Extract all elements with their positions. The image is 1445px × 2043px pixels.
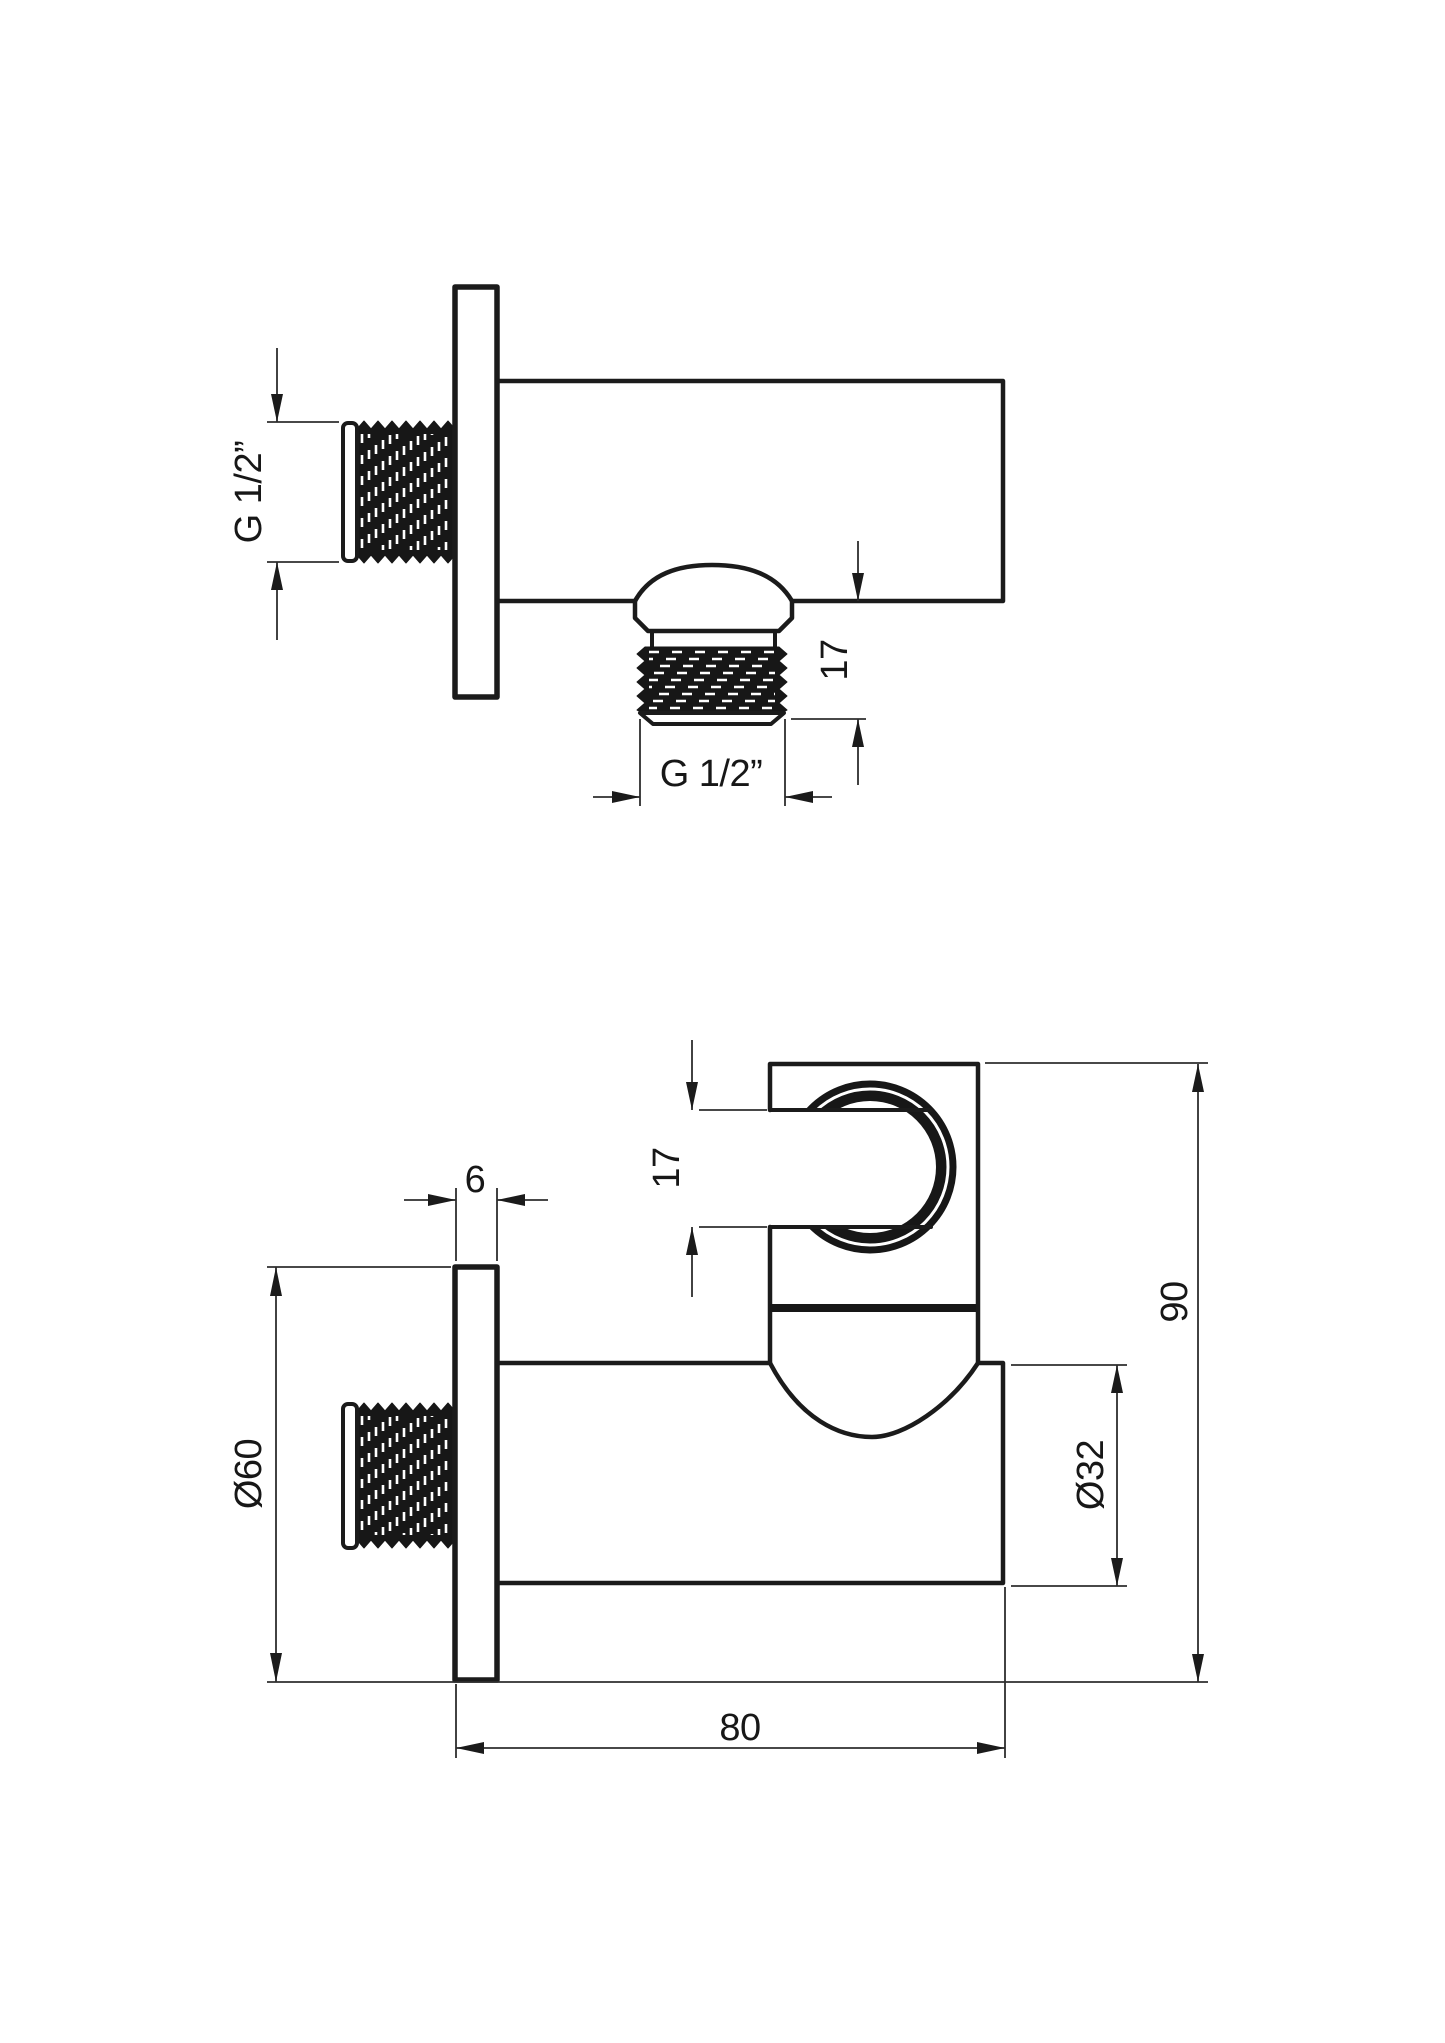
handset-holder-ring <box>764 1081 956 1253</box>
wall-plate-front-view <box>455 1267 497 1680</box>
dim-label-outlet-thread: G 1/2” <box>660 753 763 795</box>
outlet-dome <box>635 565 792 601</box>
holder-ring-slot-cut <box>764 1112 871 1225</box>
dim-body-diameter: Ø32 <box>1011 1365 1127 1586</box>
dim-label-plate-thickness: 6 <box>465 1159 486 1201</box>
outlet-thread <box>637 647 787 724</box>
dim-outlet-length: 17 <box>791 541 866 785</box>
wall-plate-top-view <box>455 287 497 697</box>
wall-thread-front <box>343 1403 455 1548</box>
dim-overall-depth: 80 <box>456 1587 1005 1758</box>
outlet-neck <box>652 631 775 647</box>
dim-label-plate-diameter: Ø60 <box>228 1439 270 1509</box>
technical-drawing-page: G 1/2” 17 G 1/2” <box>0 0 1445 2043</box>
dim-label-outlet-length: 17 <box>814 639 856 680</box>
top-view: G 1/2” 17 G 1/2” <box>228 287 1003 806</box>
wall-thread-end-cap <box>343 423 357 561</box>
dim-label-holder-slot: 17 <box>646 1147 688 1188</box>
dim-label-overall-height: 90 <box>1154 1281 1196 1322</box>
wall-thread-front-end-cap <box>343 1404 357 1548</box>
dim-plate-thickness: 6 <box>404 1159 548 1261</box>
dim-wall-thread: G 1/2” <box>228 348 339 640</box>
wall-thread <box>343 421 455 563</box>
dim-outlet-thread: G 1/2” <box>593 719 832 806</box>
dim-label-body-diameter: Ø32 <box>1070 1440 1112 1510</box>
dim-holder-slot: 17 <box>646 1040 767 1297</box>
shower-elbow-dimensional-drawing: G 1/2” 17 G 1/2” <box>0 0 1445 2043</box>
dim-label-wall-thread: G 1/2” <box>228 441 270 544</box>
outlet-thread-end-cap <box>640 713 784 724</box>
dim-label-overall-depth: 80 <box>719 1707 760 1749</box>
outlet-collar <box>635 601 792 631</box>
valve-body-front-view <box>497 1363 1003 1583</box>
front-view: 6 17 Ø60 Ø32 90 80 <box>228 1040 1208 1758</box>
dim-overall-height: 90 <box>267 1063 1208 1682</box>
